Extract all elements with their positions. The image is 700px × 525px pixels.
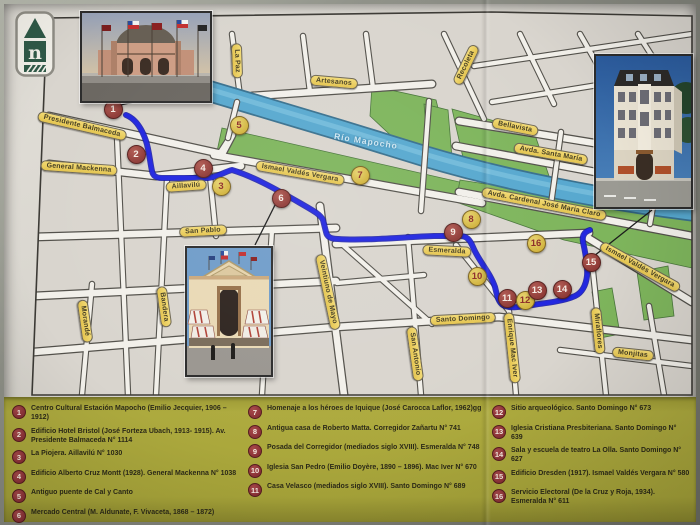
legend-text-11: Casa Velasco (mediados siglo XVIII). San… [267, 482, 465, 491]
legend-column-2: 7Homenaje a los héroes de Iquique (José … [248, 404, 482, 502]
poi-marker-16: 16 [527, 234, 546, 253]
legend-item-4: 4Edificio Alberto Cruz Montt (1928). Gen… [12, 469, 238, 484]
legend-text-4: Edificio Alberto Cruz Montt (1928). Gene… [31, 469, 236, 478]
legend-item-9: 9Posada del Corregidor (mediados siglo X… [248, 443, 482, 458]
legend-number-11: 11 [248, 483, 262, 497]
legend-number-1: 1 [12, 405, 26, 419]
legend-item-2: 2Edificio Hotel Bristol (José Forteza Ub… [12, 427, 238, 445]
poi-marker-11: 11 [498, 289, 517, 308]
logo-letter: n [28, 42, 42, 64]
legend-number-4: 4 [12, 470, 26, 484]
legend-item-11: 11Casa Velasco (mediados siglo XVIII). S… [248, 482, 482, 497]
legend-text-2: Edificio Hotel Bristol (José Forteza Uba… [31, 427, 238, 445]
legend-number-7: 7 [248, 405, 262, 419]
legend-item-3: 3La Piojera. Aillavilú N° 1030 [12, 449, 238, 464]
legend-item-5: 5Antiguo puente de Cal y Canto [12, 488, 238, 503]
mercado-central-scene [187, 248, 271, 375]
poi-marker-7: 7 [351, 166, 370, 185]
legend-text-8: Antigua casa de Roberto Matta. Corregido… [267, 424, 461, 433]
legend-number-3: 3 [12, 450, 26, 464]
poi-marker-6: 6 [272, 189, 291, 208]
legend-number-14: 14 [492, 447, 506, 461]
legend-number-13: 13 [492, 425, 506, 439]
legend-item-10: 10Iglesia San Pedro (Emilio Doyère, 1890… [248, 463, 482, 478]
edificio-dresden-scene [596, 56, 691, 207]
legend-text-6: Mercado Central (M. Aldunate, F. Vivacet… [31, 508, 214, 517]
heritage-logo-emblem: n [15, 11, 55, 77]
legend-number-12: 12 [492, 405, 506, 419]
legend-text-3: La Piojera. Aillavilú N° 1030 [31, 449, 122, 458]
legend-item-8: 8Antigua casa de Roberto Matta. Corregid… [248, 424, 482, 439]
legend-number-15: 15 [492, 470, 506, 484]
poi-marker-3: 3 [212, 177, 231, 196]
legend-text-5: Antiguo puente de Cal y Canto [31, 488, 133, 497]
legend-number-9: 9 [248, 444, 262, 458]
mercado-central-photo [185, 246, 273, 377]
poi-marker-9: 9 [444, 223, 463, 242]
poi-marker-8: 8 [462, 210, 481, 229]
legend-item-16: 16Servicio Electoral (De la Cruz y Roja,… [492, 488, 690, 506]
poi-marker-5: 5 [230, 116, 249, 135]
legend-number-2: 2 [12, 428, 26, 442]
legend-number-16: 16 [492, 489, 506, 503]
poi-marker-4: 4 [194, 159, 213, 178]
legend-item-15: 15Edificio Dresden (1917). Ismael Valdés… [492, 469, 690, 484]
legend-number-6: 6 [12, 509, 26, 523]
heritage-logo: n [15, 11, 55, 82]
legend-column-1: 1Centro Cultural Estación Mapocho (Emili… [12, 404, 238, 525]
legend-text-12: Sitio arqueológico. Santo Domingo N° 673 [511, 404, 651, 413]
leaflet-photo: Presidente BalmacedaGeneral MackennaAill… [0, 0, 700, 525]
legend-item-12: 12Sitio arqueológico. Santo Domingo N° 6… [492, 404, 690, 419]
poi-marker-15: 15 [582, 253, 601, 272]
poi-marker-14: 14 [553, 280, 572, 299]
edificio-dresden-photo [594, 54, 693, 209]
estacion-mapocho-scene [82, 13, 210, 101]
legend-number-5: 5 [12, 489, 26, 503]
map-area: Presidente BalmacedaGeneral MackennaAill… [4, 4, 696, 396]
poi-marker-13: 13 [528, 281, 547, 300]
legend-item-1: 1Centro Cultural Estación Mapocho (Emili… [12, 404, 238, 422]
legend-text-16: Servicio Electoral (De la Cruz y Roja, 1… [511, 488, 690, 506]
legend-item-6: 6Mercado Central (M. Aldunate, F. Vivace… [12, 508, 238, 523]
poi-marker-2: 2 [127, 145, 146, 164]
map-page: Presidente BalmacedaGeneral MackennaAill… [4, 4, 696, 522]
legend-number-8: 8 [248, 425, 262, 439]
legend-item-13: 13Iglesia Cristiana Presbiteriana. Santo… [492, 424, 690, 442]
legend-number-10: 10 [248, 464, 262, 478]
legend-text-10: Iglesia San Pedro (Emilio Doyère, 1890 –… [267, 463, 477, 472]
legend-text-14: Sala y escuela de teatro La Olla. Santo … [511, 446, 690, 464]
legend-text-1: Centro Cultural Estación Mapocho (Emilio… [31, 404, 238, 422]
legend-text-7: Homenaje a los héroes de Iquique (José C… [267, 404, 481, 413]
estacion-mapocho-photo [80, 11, 212, 103]
legend-column-3: 12Sitio arqueológico. Santo Domingo N° 6… [492, 404, 690, 511]
legend-text-15: Edificio Dresden (1917). Ismael Valdés V… [511, 469, 689, 478]
poi-marker-10: 10 [468, 267, 487, 286]
legend-panel: 1Centro Cultural Estación Mapocho (Emili… [4, 397, 696, 522]
legend-item-7: 7Homenaje a los héroes de Iquique (José … [248, 404, 482, 419]
legend-text-13: Iglesia Cristiana Presbiteriana. Santo D… [511, 424, 690, 442]
legend-text-9: Posada del Corregidor (mediados siglo XV… [267, 443, 479, 452]
legend-item-14: 14Sala y escuela de teatro La Olla. Sant… [492, 446, 690, 464]
